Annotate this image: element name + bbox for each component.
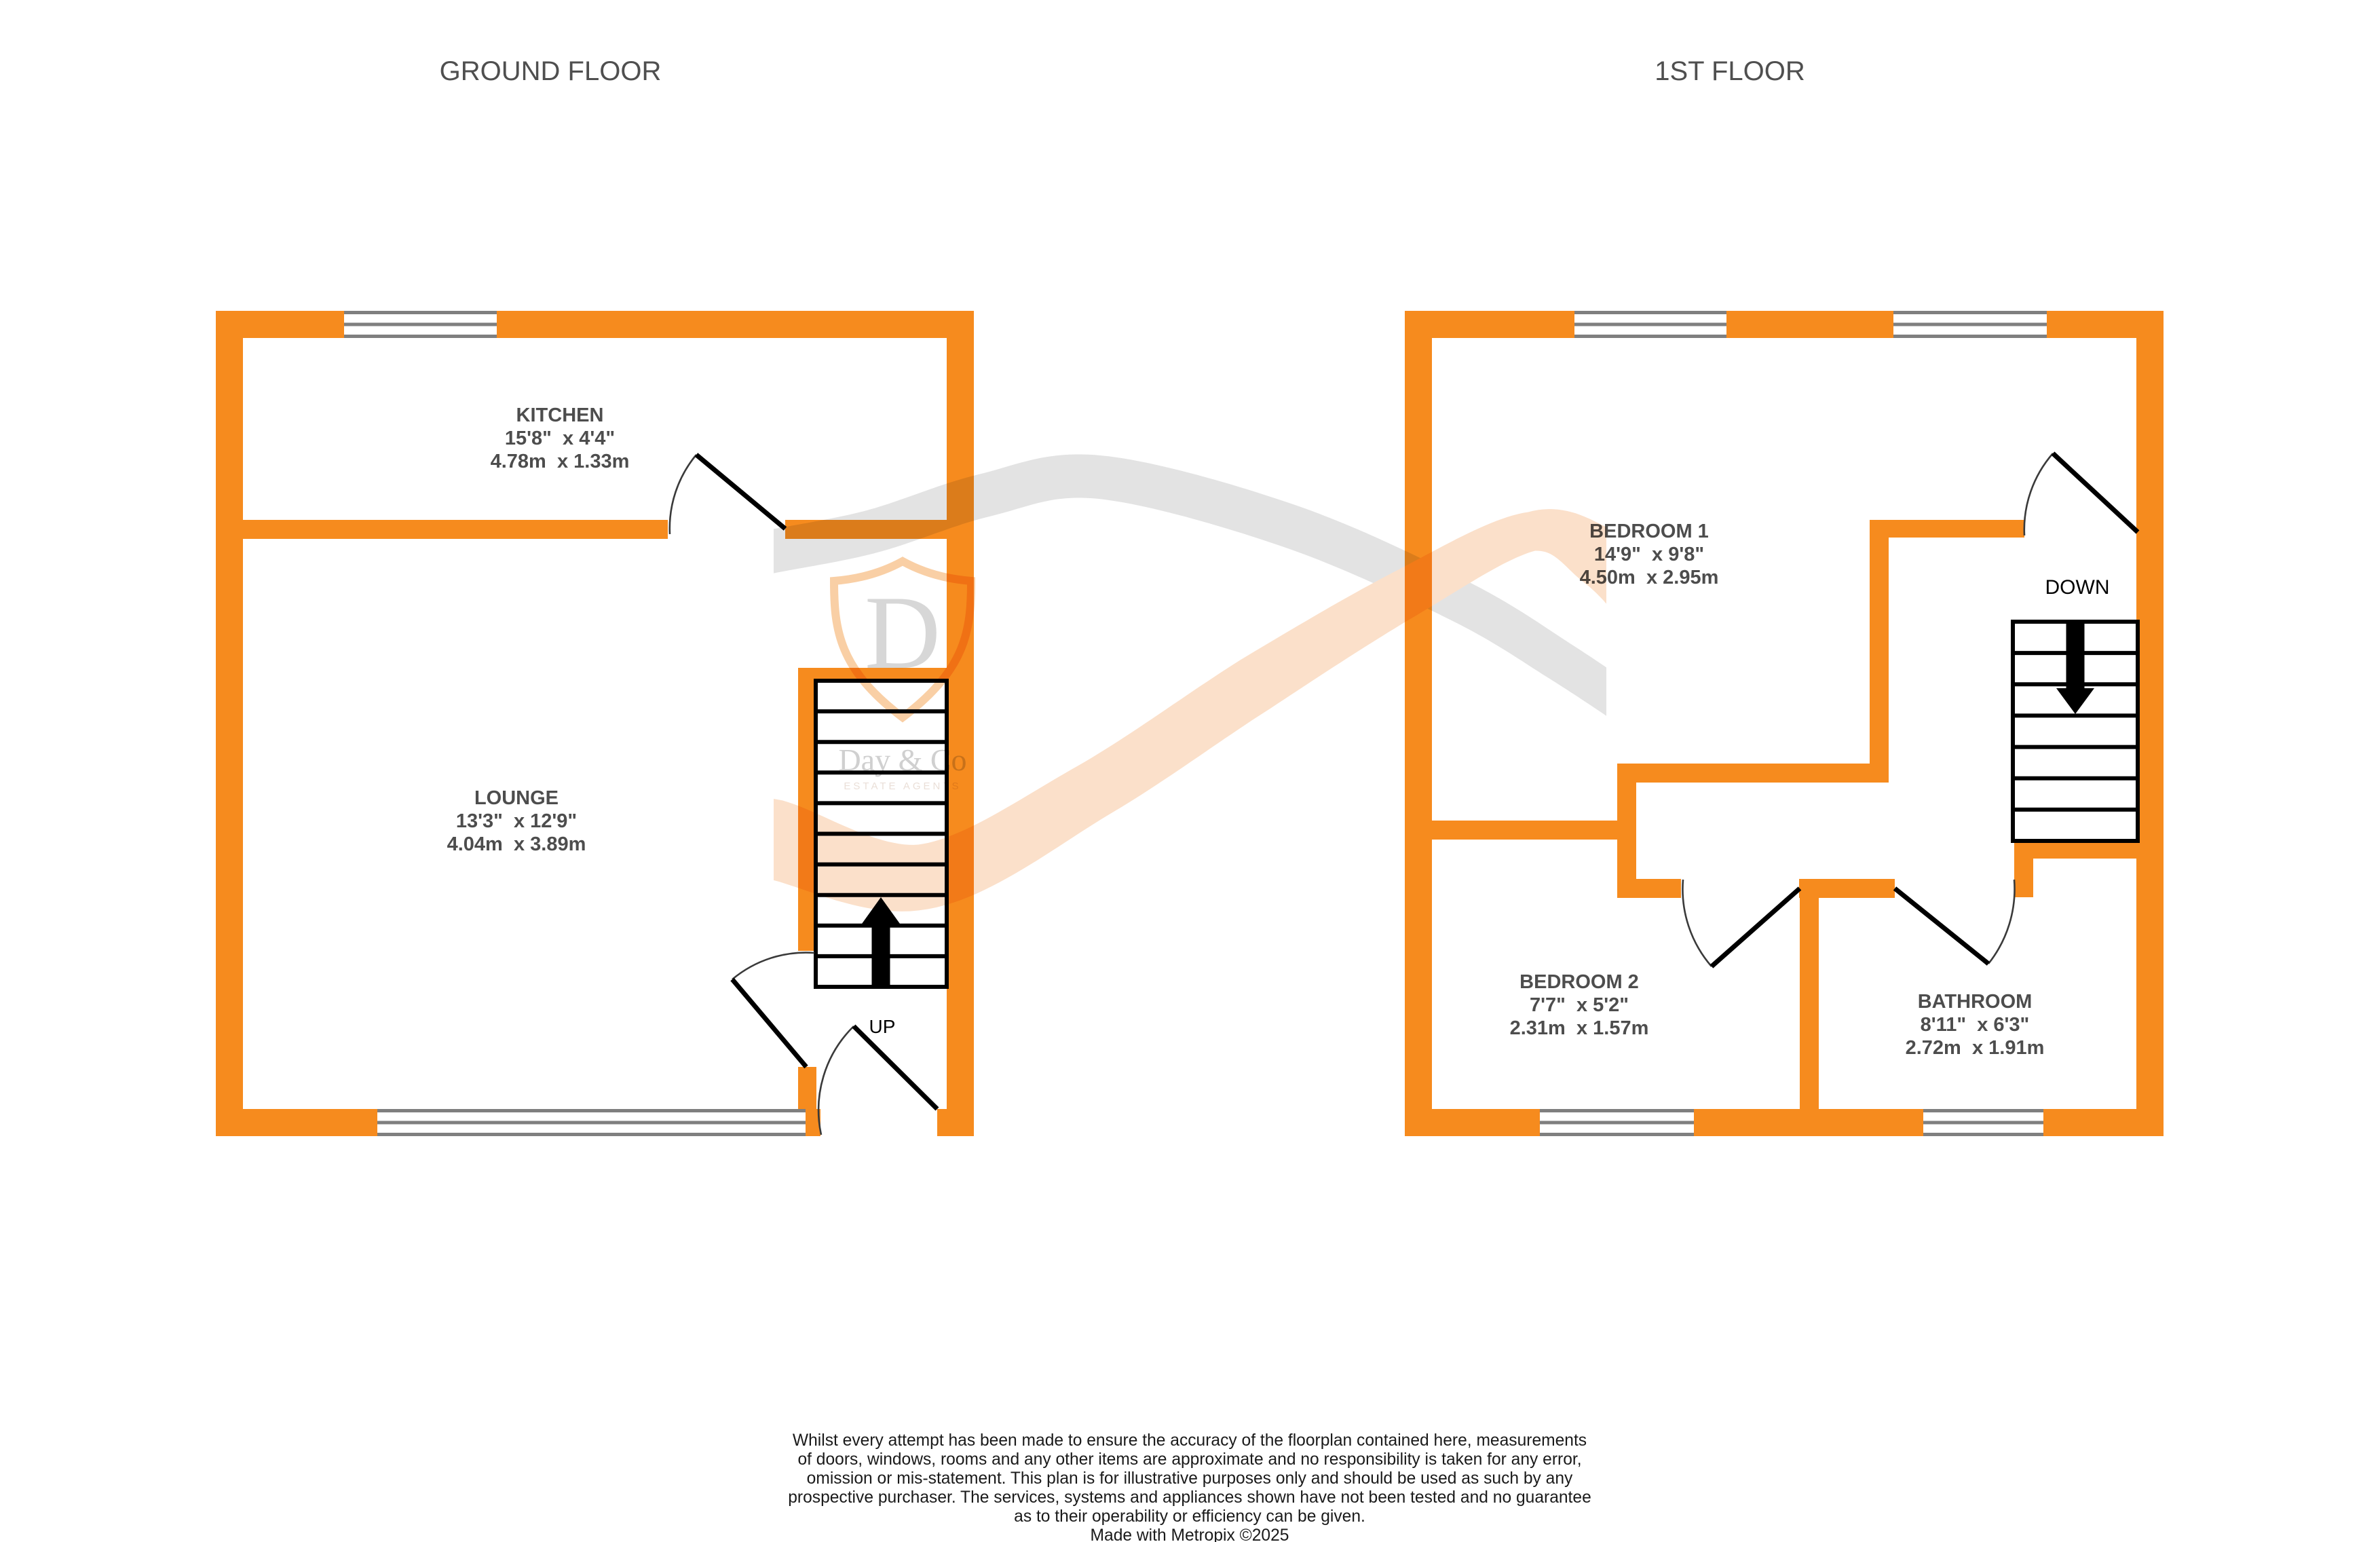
svg-text:BATHROOM: BATHROOM [1918, 991, 2033, 1013]
svg-text:KITCHEN: KITCHEN [516, 405, 604, 426]
svg-text:of doors, windows, rooms and a: of doors, windows, rooms and any other i… [797, 1450, 1581, 1469]
svg-text:13'3" x 12'9": 13'3" x 12'9" [456, 810, 577, 832]
svg-text:Whilst every attempt has been: Whilst every attempt has been made to en… [793, 1431, 1587, 1450]
svg-text:DOWN: DOWN [2045, 576, 2110, 599]
svg-text:BEDROOM 1: BEDROOM 1 [1589, 521, 1709, 542]
svg-text:7'7" x 5'2": 7'7" x 5'2" [1530, 994, 1629, 1016]
svg-text:prospective purchaser. The ser: prospective purchaser. The services, sys… [788, 1488, 1591, 1507]
svg-text:as to their operability or eff: as to their operability or efficiency ca… [1014, 1507, 1365, 1526]
svg-text:UP: UP [869, 1016, 896, 1037]
svg-text:D: D [865, 574, 941, 691]
svg-text:2.31m x 1.57m: 2.31m x 1.57m [1510, 1017, 1649, 1039]
svg-text:1ST FLOOR: 1ST FLOOR [1655, 56, 1805, 86]
svg-text:omission or mis-statement. Thi: omission or mis-statement. This plan is … [807, 1469, 1573, 1488]
svg-text:Made with Metropix ©2025: Made with Metropix ©2025 [1091, 1526, 1289, 1542]
svg-text:Day & Co: Day & Co [838, 742, 966, 777]
svg-text:4.78m x 1.33m: 4.78m x 1.33m [491, 451, 630, 472]
svg-text:14'9" x 9'8": 14'9" x 9'8" [1594, 544, 1704, 565]
svg-text:BEDROOM 2: BEDROOM 2 [1519, 971, 1639, 993]
svg-text:LOUNGE: LOUNGE [474, 787, 559, 809]
svg-text:8'11" x 6'3": 8'11" x 6'3" [1921, 1014, 2030, 1036]
svg-text:4.04m x 3.89m: 4.04m x 3.89m [447, 833, 586, 855]
svg-text:15'8" x 4'4": 15'8" x 4'4" [505, 428, 615, 449]
svg-text:2.72m x 1.91m: 2.72m x 1.91m [1906, 1037, 2045, 1059]
svg-text:ESTATE AGENTS: ESTATE AGENTS [844, 781, 961, 792]
svg-text:GROUND FLOOR: GROUND FLOOR [440, 56, 662, 86]
